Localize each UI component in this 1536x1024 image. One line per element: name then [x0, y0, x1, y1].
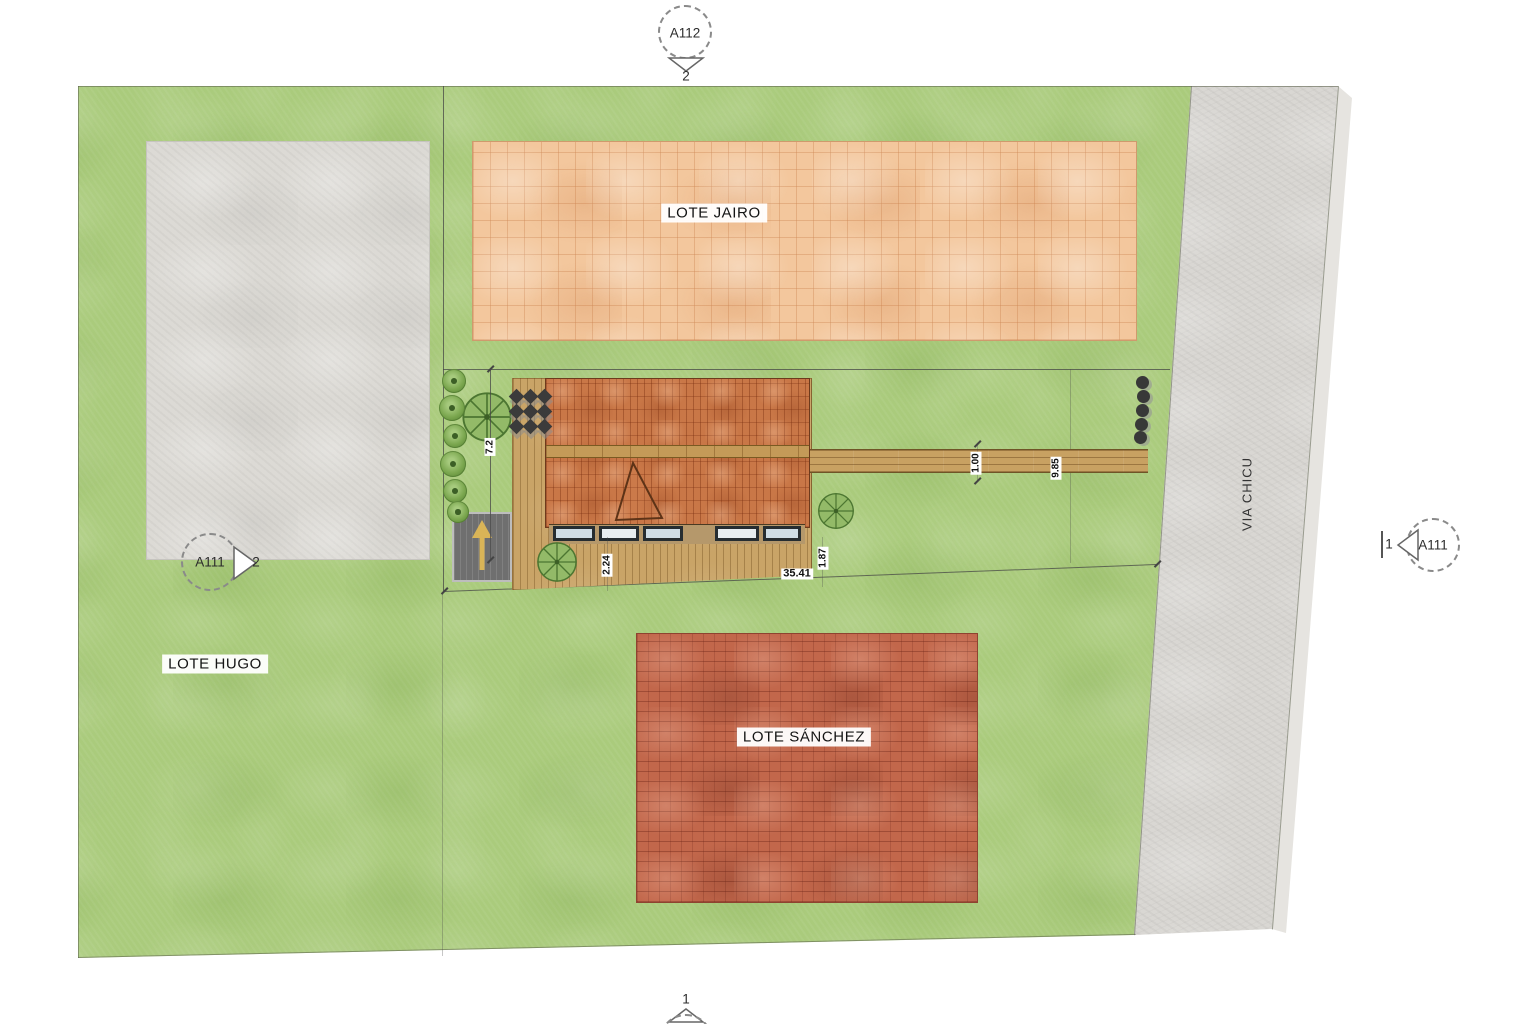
- section-marker-right-num: 1: [1385, 537, 1393, 552]
- site-plan-canvas: 7.2 2.24 35.41 1.87 1.00 9.85 LOTE JAIRO…: [0, 0, 1536, 1024]
- window-icon: [763, 526, 801, 541]
- shrub-icon: [447, 501, 469, 523]
- lot-jairo-area: [472, 141, 1137, 341]
- tree-icon: [536, 541, 578, 583]
- shrub-icon: [443, 479, 467, 503]
- dim-deck-depth: 2.24: [602, 553, 613, 576]
- window-icon: [553, 526, 595, 541]
- section-marker-top-id[interactable]: A112: [670, 26, 701, 41]
- dim-south-boundary: 35.41: [781, 569, 813, 580]
- shrub-icon: [439, 395, 465, 421]
- lot-jairo-label: LOTE JAIRO: [661, 204, 767, 223]
- north-boundary-line: [78, 86, 1338, 87]
- house-roof: [545, 378, 810, 528]
- section-marker-right-id[interactable]: A111: [1418, 538, 1448, 553]
- bush-icon: [1137, 390, 1150, 403]
- dim-path-width: 1.00: [971, 451, 982, 474]
- window-icon: [715, 526, 759, 541]
- parcel-line-vertical-lower: [442, 592, 443, 956]
- section-marker-bottom-num: 1: [682, 992, 690, 1007]
- bush-icon: [1134, 431, 1147, 444]
- window-icon: [643, 526, 683, 541]
- entry-arrow-icon: [454, 514, 510, 580]
- section-marker-top-num: 2: [682, 69, 690, 84]
- road-name-label: VIA CHICU: [1240, 457, 1255, 531]
- shrub-icon: [440, 451, 466, 477]
- bush-icon: [1136, 376, 1149, 389]
- section-marker-left-id[interactable]: A111: [195, 555, 225, 570]
- dim-front-setback: 7.2: [485, 438, 496, 456]
- section-arrow-left-icon: [1396, 528, 1420, 562]
- dim-deck-offset: 1.87: [818, 546, 829, 569]
- roof-ridge: [546, 445, 809, 458]
- section-marker-left-num: 2: [252, 555, 260, 570]
- lot-hugo-label: LOTE HUGO: [162, 655, 268, 674]
- house-window-wall: [549, 524, 805, 544]
- shrub-icon: [443, 424, 467, 448]
- lot-sanchez-label: LOTE SÁNCHEZ: [737, 728, 871, 747]
- bush-icon: [1135, 418, 1148, 431]
- section-tick-line: [1381, 531, 1383, 558]
- bush-icon: [1136, 404, 1149, 417]
- tree-icon: [817, 492, 855, 530]
- shrub-icon: [442, 369, 466, 393]
- gravel-lot-area: [146, 141, 430, 560]
- roof-tree-sketch-icon: [613, 460, 665, 524]
- parcel-line-top: [443, 369, 1170, 370]
- dim-path-length: 9.85: [1051, 456, 1062, 479]
- parcel-line-vertical: [443, 86, 444, 592]
- west-boundary-line: [78, 86, 79, 958]
- window-icon: [599, 526, 639, 541]
- lot-sanchez-area: [636, 633, 978, 903]
- tree-icon: [461, 391, 513, 443]
- dim-line-front-setback: [490, 369, 491, 560]
